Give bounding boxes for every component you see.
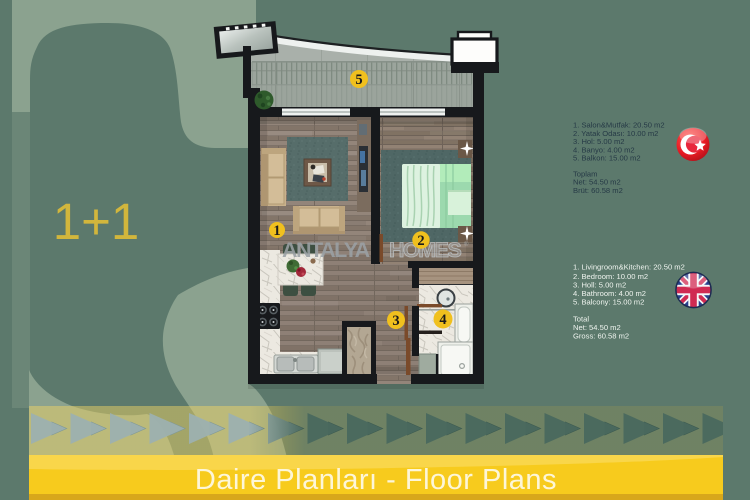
svg-text:Gross: 60.58 m2: Gross: 60.58 m2 [573,331,629,340]
svg-text:®: ® [464,241,469,248]
svg-text:5. Balcony: 15.00 m2: 5. Balcony: 15.00 m2 [573,298,644,307]
svg-text:2: 2 [417,233,424,249]
svg-text:1+1: 1+1 [53,193,140,250]
svg-text:1: 1 [273,223,280,239]
svg-text:Daire Planları - Floor Plans: Daire Planları - Floor Plans [195,464,557,496]
svg-text:5: 5 [355,72,362,88]
svg-text:ANTALYA: ANTALYA [282,238,370,262]
svg-text:3: 3 [392,313,399,329]
svg-text:4: 4 [439,312,446,328]
svg-text:1. Livingroom&Kitchen: 20.50 m: 1. Livingroom&Kitchen: 20.50 m2 [573,262,685,271]
svg-text:Brüt: 60.58 m2: Brüt: 60.58 m2 [573,186,623,195]
svg-text:5. Balkon: 15.00 m2: 5. Balkon: 15.00 m2 [573,154,641,163]
